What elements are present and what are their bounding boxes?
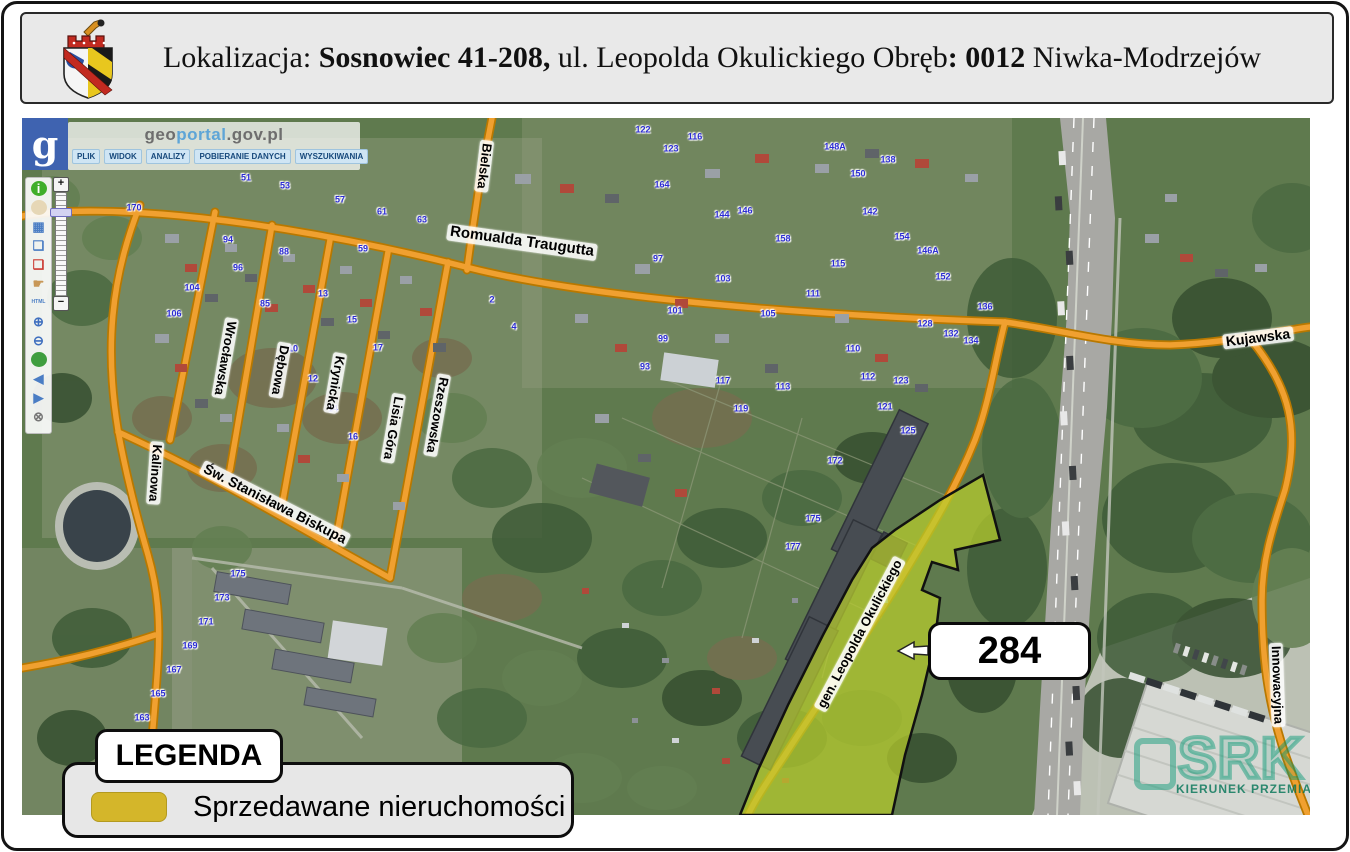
house-number: 94 bbox=[223, 236, 233, 245]
geoportal-title-portal: portal bbox=[176, 125, 226, 144]
house-number: 12 bbox=[308, 375, 318, 384]
house-number: 103 bbox=[715, 275, 730, 284]
house-number: 96 bbox=[233, 264, 243, 273]
house-number: 16 bbox=[348, 433, 358, 442]
zoom-out-icon[interactable]: ⊖ bbox=[31, 333, 47, 348]
close-icon[interactable]: ⊗ bbox=[31, 409, 47, 424]
house-number: 110 bbox=[846, 345, 861, 354]
house-number: 138 bbox=[880, 156, 895, 165]
house-number: 111 bbox=[806, 290, 820, 299]
select-remove-icon[interactable]: ❏ bbox=[31, 257, 47, 272]
house-number: 167 bbox=[166, 666, 181, 675]
house-number: 123 bbox=[893, 377, 908, 386]
next-view-icon[interactable]: ▶ bbox=[31, 390, 47, 405]
house-number: 53 bbox=[280, 182, 290, 191]
menu-item-plik[interactable]: PLIK bbox=[72, 149, 100, 164]
pan-hand-icon[interactable]: ☛ bbox=[31, 276, 47, 291]
house-number: 123 bbox=[663, 145, 678, 154]
measure-icon[interactable] bbox=[31, 200, 47, 215]
zoom-in-button[interactable]: + bbox=[53, 177, 69, 192]
house-number: 115 bbox=[831, 260, 846, 269]
zoom-out-button[interactable]: − bbox=[53, 296, 69, 311]
house-number: 154 bbox=[894, 233, 909, 242]
parcel-number-callout: 284 bbox=[928, 622, 1091, 680]
house-number: 177 bbox=[785, 543, 800, 552]
street-label-innowacyjna: Innowacyjna bbox=[1268, 643, 1285, 727]
house-number: 119 bbox=[734, 405, 749, 414]
house-number: 59 bbox=[358, 245, 368, 254]
house-number: 15 bbox=[347, 316, 357, 325]
parcel-number: 284 bbox=[978, 630, 1041, 673]
house-number: 158 bbox=[775, 235, 790, 244]
house-number: 136 bbox=[977, 303, 992, 312]
pond bbox=[63, 490, 131, 562]
house-number: 97 bbox=[653, 255, 663, 264]
house-number: 105 bbox=[760, 310, 775, 319]
house-number: 175 bbox=[805, 515, 820, 524]
house-number: 17 bbox=[373, 344, 383, 353]
zoom-in-icon[interactable]: ⊕ bbox=[31, 314, 47, 329]
house-number: 57 bbox=[335, 196, 345, 205]
house-number: 152 bbox=[935, 273, 950, 282]
geoportal-title: geoportal.gov.pl bbox=[68, 125, 360, 145]
map-toolbar: i▦❏❏☛HTML⊕⊖◀▶⊗ bbox=[25, 177, 52, 434]
full-extent-icon[interactable] bbox=[31, 352, 47, 367]
house-number: 148A bbox=[824, 143, 846, 152]
menu-item-analizy[interactable]: ANALIZY bbox=[146, 149, 191, 164]
house-number: 175 bbox=[230, 570, 245, 579]
house-number: 169 bbox=[182, 642, 197, 651]
sosnowiec-coat-of-arms-icon bbox=[56, 18, 120, 100]
select-add-icon[interactable]: ❏ bbox=[31, 238, 47, 253]
house-number: 122 bbox=[635, 126, 650, 135]
layers-icon[interactable]: ▦ bbox=[31, 219, 47, 234]
geoportal-menubar: geoportal.gov.pl PLIKWIDOKANALIZYPOBIERA… bbox=[68, 122, 360, 170]
house-number: 142 bbox=[862, 208, 877, 217]
house-number: 51 bbox=[241, 174, 251, 183]
page-title-part: Niwka-Modrzejów bbox=[1025, 41, 1261, 74]
info-icon[interactable]: i bbox=[31, 181, 47, 196]
menu-item-widok[interactable]: WIDOK bbox=[104, 149, 142, 164]
house-number: 172 bbox=[827, 457, 842, 466]
menu-item-wyszukiwania[interactable]: WYSZUKIWANIA bbox=[295, 149, 369, 164]
menu-item-pobieranie-danych[interactable]: POBIERANIE DANYCH bbox=[194, 149, 290, 164]
house-number: 121 bbox=[877, 403, 892, 412]
house-number: 163 bbox=[134, 714, 149, 723]
legend-items: Sprzedawane nieruchomości bbox=[65, 777, 565, 824]
house-number: 128 bbox=[917, 320, 932, 329]
house-number: 134 bbox=[963, 337, 978, 346]
page-title-part: Lokalizacja: bbox=[163, 41, 319, 74]
house-number: 13 bbox=[318, 290, 328, 299]
page-title-part: ul. Leopolda Okulickiego Obręb bbox=[550, 41, 947, 74]
house-number: 85 bbox=[260, 300, 270, 309]
geoportal-title-geo: geo bbox=[145, 125, 177, 144]
house-number: 101 bbox=[667, 307, 682, 316]
house-number: 112 bbox=[861, 373, 876, 382]
house-number: 146 bbox=[737, 207, 752, 216]
legend-title: LEGENDA bbox=[95, 729, 283, 783]
zoom-slider-handle[interactable] bbox=[50, 208, 72, 217]
house-number: 88 bbox=[279, 248, 289, 257]
house-number: 146A bbox=[917, 247, 939, 256]
house-number: 116 bbox=[688, 133, 703, 142]
location-header: Lokalizacja: Sosnowiec 41-208, ul. Leopo… bbox=[20, 12, 1334, 104]
house-number: 2 bbox=[489, 296, 494, 305]
house-number: 165 bbox=[150, 690, 165, 699]
geoportal-menu: PLIKWIDOKANALIZYPOBIERANIE DANYCHWYSZUKI… bbox=[72, 149, 368, 164]
house-number: 132 bbox=[943, 330, 958, 339]
house-number: 93 bbox=[640, 363, 650, 372]
house-number: 113 bbox=[776, 383, 791, 392]
zoom-control: + − bbox=[52, 177, 70, 311]
house-number: 164 bbox=[654, 181, 669, 190]
house-number: 171 bbox=[198, 618, 213, 627]
house-number: 170 bbox=[126, 204, 141, 213]
page-title-part: Sosnowiec 41-208, bbox=[319, 41, 551, 74]
house-number: 106 bbox=[166, 310, 181, 319]
house-number: 104 bbox=[184, 284, 199, 293]
house-number: 61 bbox=[377, 208, 387, 217]
house-number: 150 bbox=[850, 170, 865, 179]
html-icon[interactable]: HTML bbox=[31, 295, 47, 310]
geoportal-title-govpl: .gov.pl bbox=[226, 125, 283, 144]
page-title: Lokalizacja: Sosnowiec 41-208, ul. Leopo… bbox=[22, 41, 1332, 75]
geoportal-logo[interactable]: g bbox=[22, 118, 68, 170]
house-number: 117 bbox=[716, 377, 731, 386]
flyer-page: Lokalizacja: Sosnowiec 41-208, ul. Leopo… bbox=[0, 0, 1350, 852]
house-number: 173 bbox=[214, 594, 229, 603]
house-number: 125 bbox=[900, 427, 915, 436]
house-number: 63 bbox=[417, 216, 427, 225]
geoportal-logo-letter: g bbox=[32, 122, 59, 167]
house-number: 99 bbox=[658, 335, 668, 344]
house-number: 4 bbox=[511, 323, 516, 332]
legend-item: Sprzedawane nieruchomości bbox=[91, 791, 565, 824]
prev-view-icon[interactable]: ◀ bbox=[31, 371, 47, 386]
legend-label: Sprzedawane nieruchomości bbox=[193, 791, 565, 824]
geoportal-map-viewport[interactable]: BielskaRomualda TrauguttaWrocławskaDębow… bbox=[22, 118, 1310, 815]
page-title-part: : 0012 bbox=[948, 41, 1026, 74]
house-number: 144 bbox=[714, 211, 729, 220]
legend-swatch bbox=[91, 792, 167, 822]
